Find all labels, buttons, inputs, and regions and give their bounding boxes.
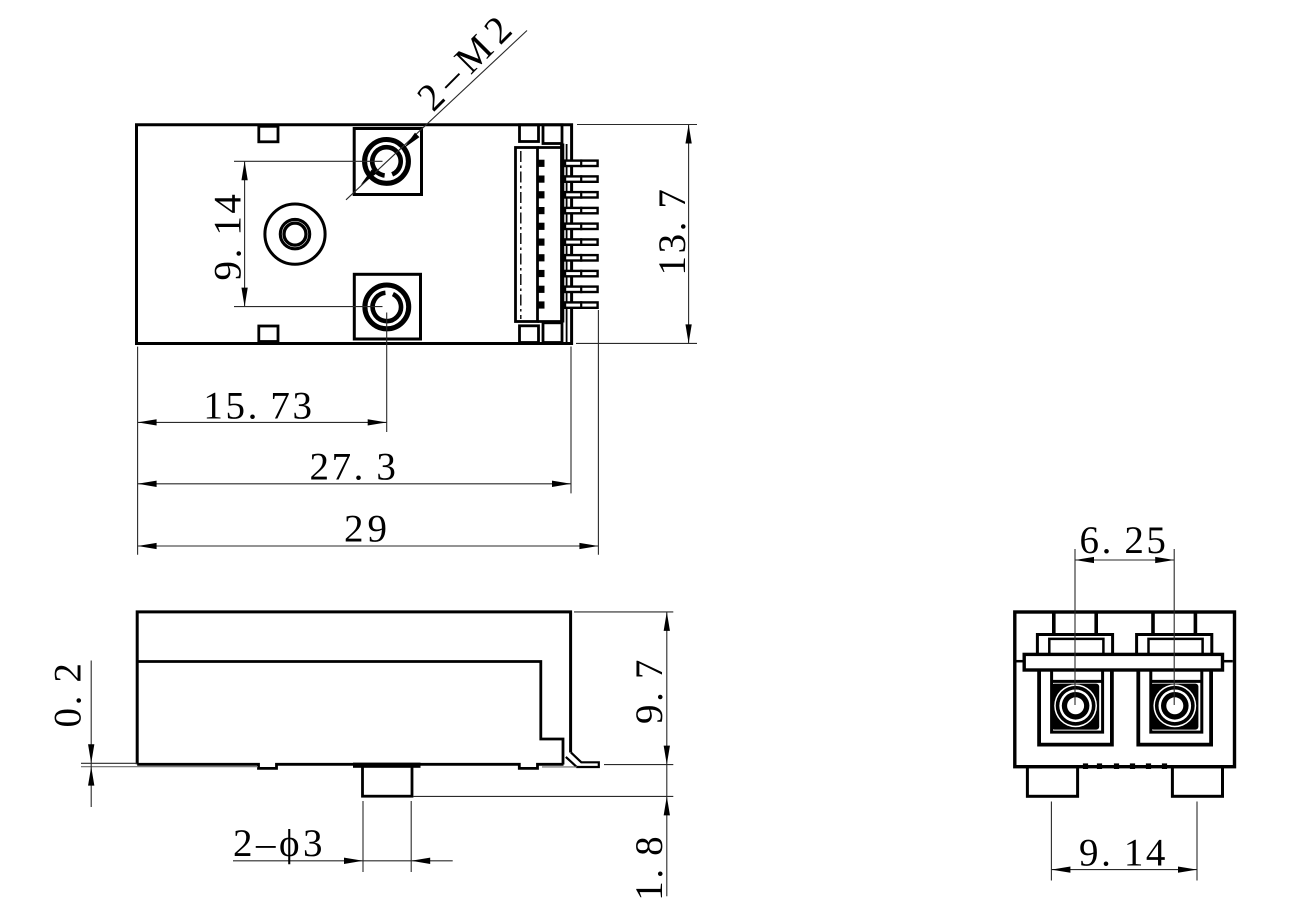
svg-text:9. 7: 9. 7	[628, 657, 671, 724]
svg-text:9. 14: 9. 14	[1079, 832, 1168, 875]
svg-text:6. 25: 6. 25	[1079, 519, 1168, 562]
svg-text:13. 7: 13. 7	[651, 186, 694, 275]
svg-text:29: 29	[344, 508, 391, 551]
svg-text:9. 14: 9. 14	[207, 191, 250, 280]
svg-text:27. 3: 27. 3	[309, 446, 398, 489]
svg-text:15. 73: 15. 73	[203, 384, 314, 427]
svg-text:1. 8: 1. 8	[628, 834, 671, 901]
svg-text:0. 2: 0. 2	[47, 661, 90, 728]
svg-text:2–ϕ3: 2–ϕ3	[233, 822, 326, 865]
